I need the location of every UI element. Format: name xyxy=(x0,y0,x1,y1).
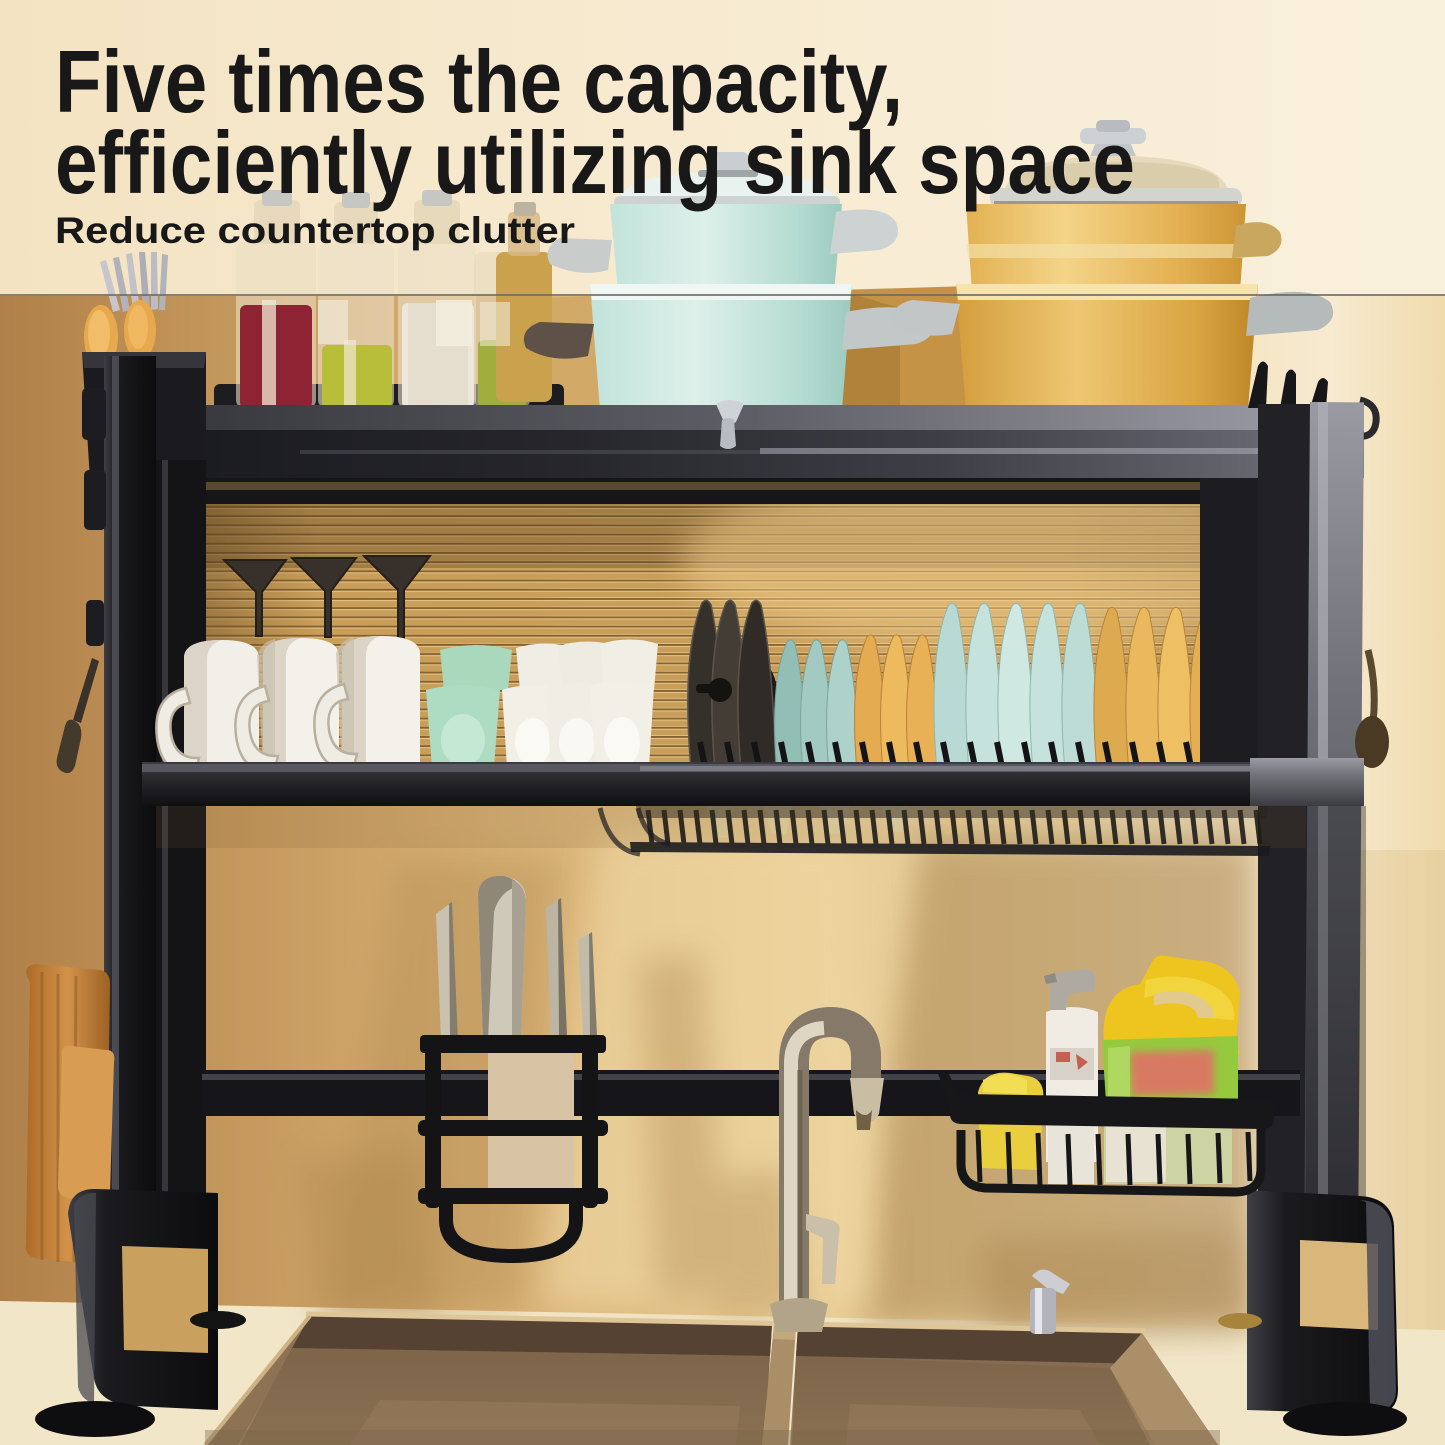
svg-text:efficiently utilizing sink spa: efficiently utilizing sink space xyxy=(55,113,1135,212)
svg-text:Reduce countertop clutter: Reduce countertop clutter xyxy=(55,210,575,251)
